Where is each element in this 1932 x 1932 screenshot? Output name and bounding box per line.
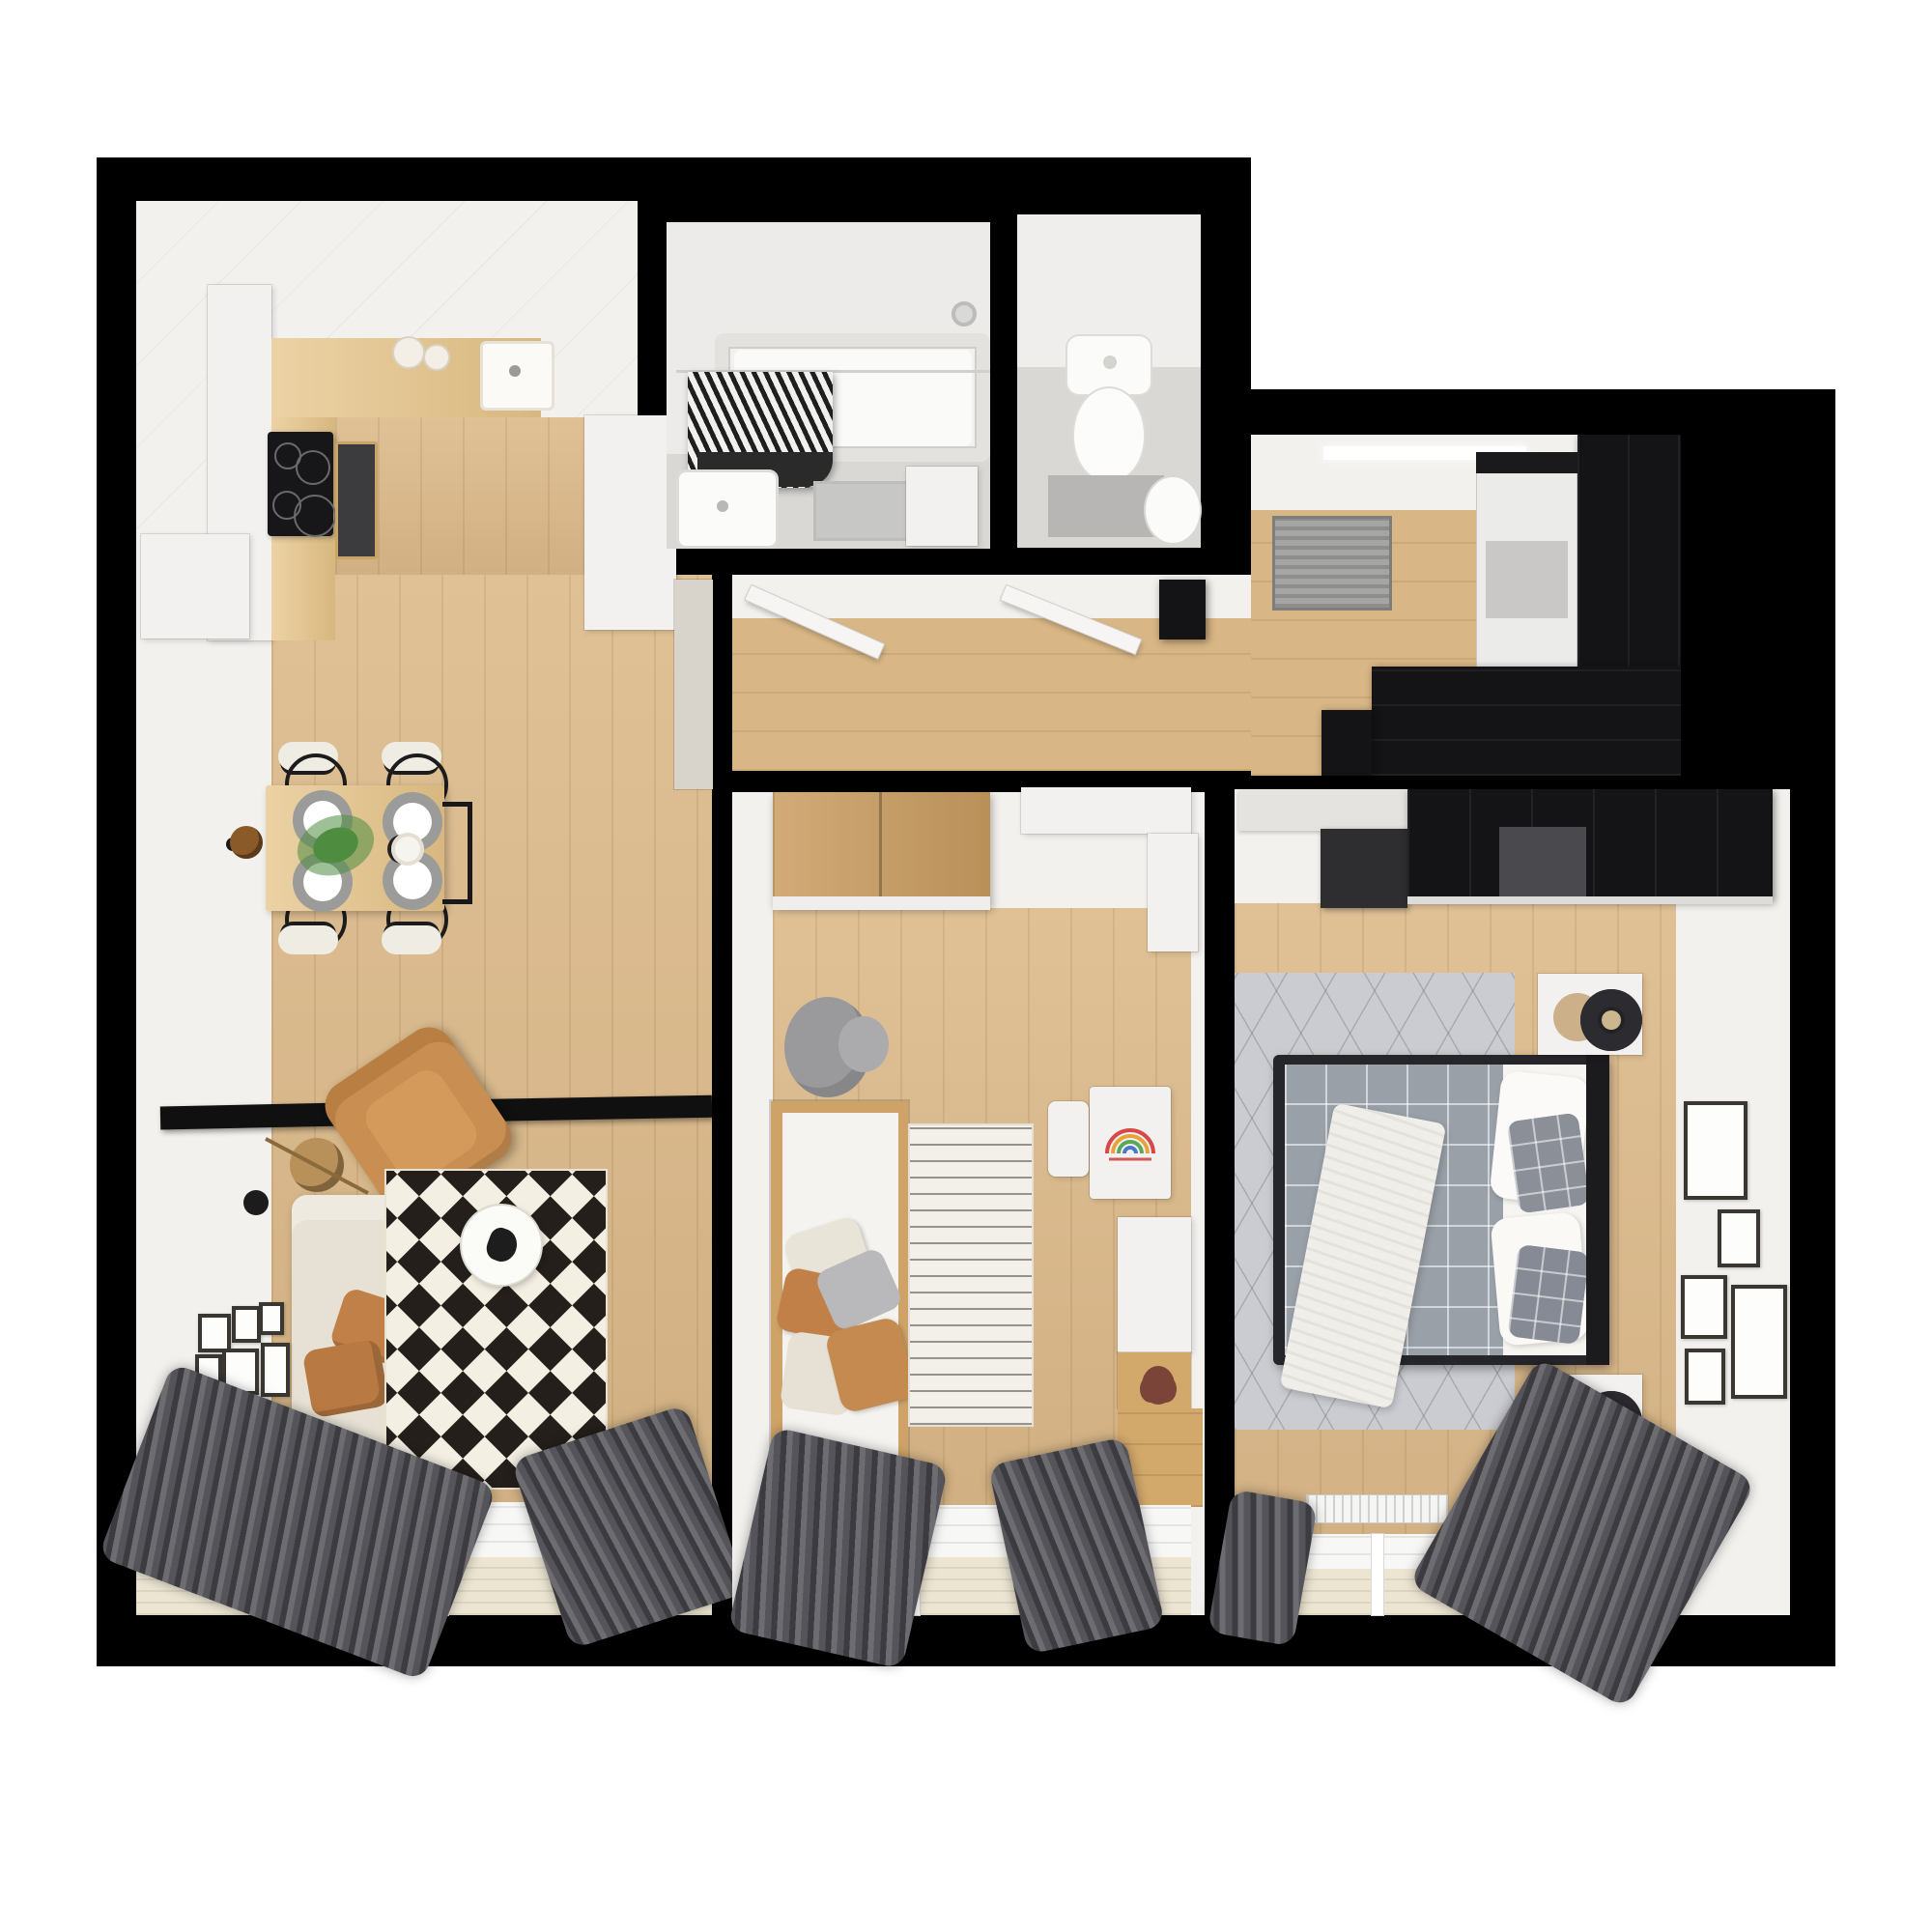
counter-jar-1	[394, 338, 423, 367]
bed-pillow-check-1	[1507, 1112, 1591, 1213]
plate-4	[393, 861, 432, 899]
kitchen-cabinet-lower-left	[141, 534, 249, 639]
shower-head	[952, 301, 977, 327]
oven	[335, 441, 378, 559]
gallery-frame-1	[198, 1314, 231, 1352]
kids-console-side	[1148, 834, 1198, 952]
sofa-pillow-2	[302, 1339, 390, 1419]
gallery-frame-2	[232, 1306, 261, 1343]
master-wardrobe-front-rail	[1407, 896, 1773, 904]
table-side-frame	[442, 802, 472, 904]
master-frame-3	[1681, 1275, 1727, 1339]
entry-doormat	[1275, 519, 1389, 608]
bath-cabinet	[906, 467, 978, 546]
toilet-bowl	[1074, 388, 1144, 481]
master-frame-1	[1684, 1101, 1747, 1200]
tall-cabinet-fridge	[674, 580, 713, 789]
elephant-plush-ear	[838, 1016, 889, 1072]
kitchen-counter-right-column	[584, 415, 676, 630]
sink-faucet	[509, 365, 521, 377]
floor-lamp-base	[243, 1190, 269, 1215]
entry-sideboard-step	[1321, 710, 1372, 776]
counter-jar-2	[425, 346, 448, 369]
kids-wall-unit-white	[1118, 1217, 1191, 1352]
bath-rug	[813, 481, 912, 541]
kids-wardrobe-front	[773, 896, 990, 910]
bed-headboard	[1586, 1055, 1609, 1365]
master-frame-2	[1718, 1209, 1760, 1267]
hallway-floor	[732, 618, 1251, 771]
gallery-frame-8	[261, 1343, 290, 1397]
kids-desk-rainbow-drawing	[1099, 1111, 1161, 1165]
dining-wall-lamp	[230, 826, 263, 859]
master-wardrobe-open-section	[1499, 827, 1586, 896]
floor-plan-canvas	[0, 0, 1932, 1932]
washbasin-drain	[717, 500, 728, 512]
dining-chair-bottom-1	[278, 925, 338, 954]
entry-wardrobe-inner-shadow	[1486, 541, 1568, 618]
master-radiator	[1307, 1495, 1447, 1522]
master-wardrobe-black	[1407, 789, 1773, 901]
table-vase	[391, 833, 424, 866]
master-dresser-dark	[1321, 829, 1407, 908]
nightstand-top-lamp-center	[1602, 1010, 1621, 1030]
kids-striped-rug	[910, 1125, 1032, 1425]
bed-pillow-check-2	[1507, 1244, 1589, 1345]
hall-cabinet	[1159, 580, 1206, 639]
kids-wardrobe-seam	[879, 792, 882, 908]
master-frame-4	[1731, 1285, 1787, 1399]
teddy-bear	[1142, 1366, 1175, 1405]
master-shelf-white	[1238, 790, 1408, 831]
burner-4	[294, 495, 336, 537]
dining-chair-bottom-2	[382, 925, 441, 954]
kids-chair	[1048, 1101, 1089, 1177]
kids-console-top	[1021, 787, 1191, 834]
master-window-mullion-1	[1372, 1534, 1383, 1615]
master-frame-5	[1685, 1349, 1725, 1405]
toilet-button	[1103, 355, 1117, 369]
entry-sideboard	[1372, 667, 1681, 776]
burner-2	[296, 450, 330, 485]
wc-basin	[1146, 477, 1200, 543]
gallery-frame-3	[259, 1302, 284, 1335]
